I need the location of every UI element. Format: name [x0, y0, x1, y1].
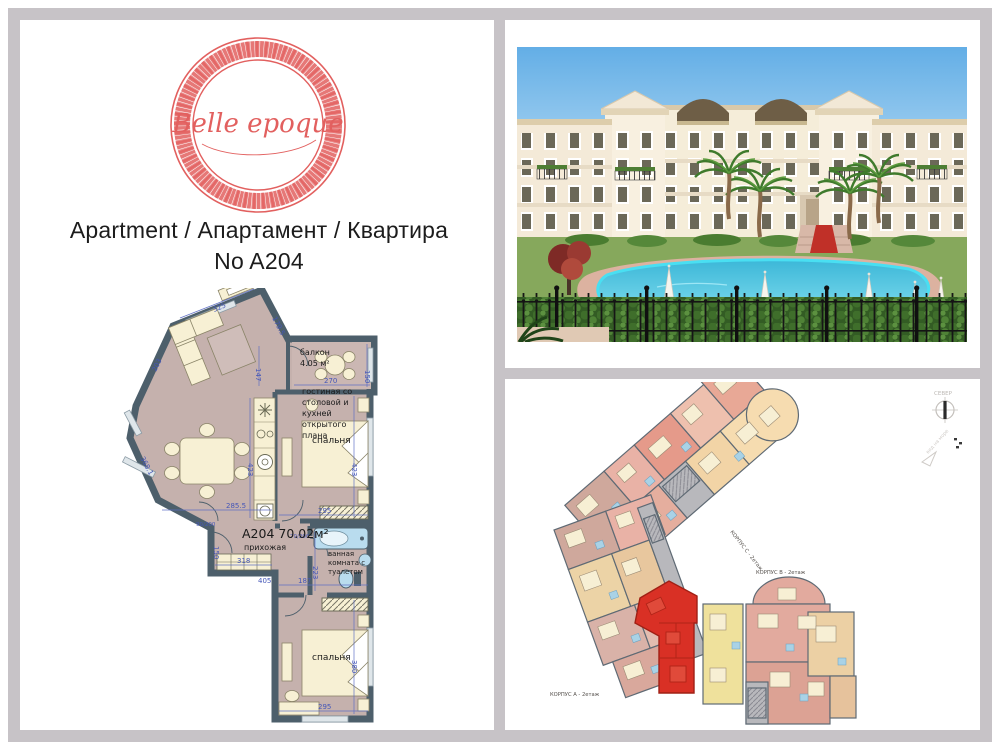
compass-needle: [943, 401, 946, 419]
flyer-canvas: Belle epoque Apartment / Апартамент / Кв…: [0, 0, 1000, 750]
logo-swash: [202, 140, 316, 155]
svg-text:318: 318: [237, 557, 250, 565]
svg-text:423: 423: [246, 463, 254, 476]
sea-view-label: вид на море: [926, 429, 950, 455]
svg-text:комната с: комната с: [328, 559, 365, 567]
kitchen-strip: [254, 398, 275, 520]
svg-text:кухней: кухней: [302, 409, 332, 418]
svg-text:столовой и: столовой и: [302, 398, 349, 407]
svg-text:423: 423: [350, 463, 358, 476]
divider-horizontal: [505, 368, 980, 379]
building-render: [517, 47, 967, 342]
apartment-floorplan: 325 147 179.5 270 150 203 368.1 423 423 …: [122, 288, 467, 730]
bedroom2-label: спальня: [312, 653, 351, 663]
corpus-a-label: КОРПУС А - 2етаж: [550, 692, 600, 698]
washer-icon: [258, 455, 273, 470]
apartment-heading: Apartment / Апартамент / Квартира No A20…: [22, 215, 496, 277]
svg-text:223: 223: [311, 566, 319, 579]
hallway-label: прихожая: [244, 543, 286, 552]
living-label: гостиная со: [302, 387, 352, 396]
svg-text:295: 295: [318, 507, 331, 515]
svg-text:туалетом: туалетом: [328, 568, 363, 576]
svg-text:380: 380: [350, 660, 358, 673]
north-label: СЕВЕР: [934, 391, 953, 397]
svg-text:150: 150: [212, 546, 220, 559]
balcony-label: балкон: [300, 348, 330, 357]
svg-text:90/200: 90/200: [196, 522, 216, 528]
logo-text: Belle epoque: [171, 109, 343, 139]
sea-view-marker: вид на море: [922, 429, 962, 466]
svg-text:405: 405: [258, 577, 271, 585]
heading-line1: Apartment / Апартамент / Квартира: [22, 215, 496, 246]
apartment-id-label: A204 70.02м²: [242, 526, 329, 541]
svg-text:147: 147: [254, 368, 262, 381]
svg-text:295: 295: [318, 703, 331, 711]
corpus-b-label: КОРПУС В - 2етаж: [756, 570, 806, 576]
svg-text:150: 150: [363, 370, 371, 383]
bath-label: ванная: [328, 550, 354, 558]
divider-vertical: [494, 20, 505, 730]
svg-text:открытого: открытого: [302, 420, 347, 429]
svg-text:270: 270: [324, 377, 337, 385]
lamp-symbol: [258, 403, 272, 417]
site-plan: КОРПУС А - 2етаж КОРПУС В - 2етаж КОРПУС…: [508, 382, 978, 730]
svg-text:187: 187: [298, 577, 311, 585]
north-compass: СЕВЕР: [932, 391, 958, 423]
entrance: [795, 225, 853, 253]
svg-text:285.5: 285.5: [226, 502, 246, 510]
heading-line2: No A204: [22, 246, 496, 277]
corpus-c-label: КОРПУС С - 2етаж: [728, 530, 763, 573]
dining-table: [180, 438, 234, 484]
corpus-b-block: [703, 577, 856, 724]
bedroom1-label: спальня: [312, 436, 351, 446]
belle-epoque-logo: Belle epoque: [158, 30, 358, 220]
svg-text:4.05 м²: 4.05 м²: [300, 359, 330, 368]
